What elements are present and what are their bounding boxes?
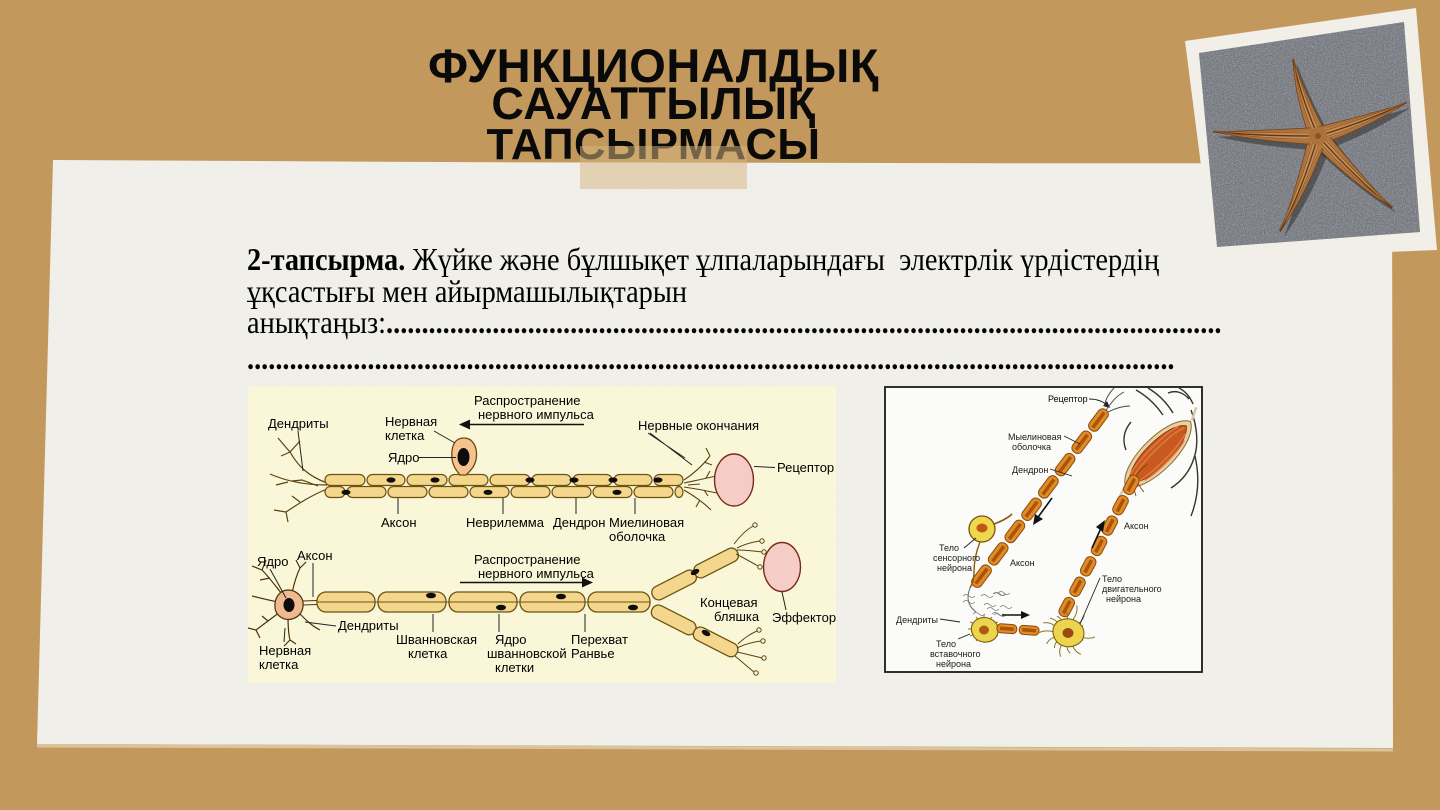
svg-text:Ранвье: Ранвье xyxy=(571,646,615,661)
svg-text:Нервные окончания: Нервные окончания xyxy=(638,418,759,433)
svg-text:Аксон: Аксон xyxy=(1124,521,1149,531)
svg-text:Шванновская: Шванновская xyxy=(396,632,477,647)
svg-text:нейрона: нейрона xyxy=(937,563,972,573)
svg-text:Перехват: Перехват xyxy=(571,632,628,647)
svg-text:вставочного: вставочного xyxy=(930,649,980,659)
svg-text:бляшка: бляшка xyxy=(714,609,760,624)
svg-text:Дендриты: Дендриты xyxy=(896,615,938,625)
svg-text:Рецептор: Рецептор xyxy=(777,460,834,475)
svg-text:Рецептор: Рецептор xyxy=(1048,394,1088,404)
svg-text:Мыелиновая: Мыелиновая xyxy=(1008,432,1062,442)
svg-text:Миелиновая: Миелиновая xyxy=(609,515,684,530)
svg-text:Дендрон: Дендрон xyxy=(553,515,605,530)
svg-text:Нервная: Нервная xyxy=(259,643,311,658)
svg-text:клетка: клетка xyxy=(259,657,299,672)
svg-text:Тело: Тело xyxy=(936,639,956,649)
svg-text:Дендрон: Дендрон xyxy=(1012,465,1048,475)
svg-text:Ядро: Ядро xyxy=(495,632,526,647)
svg-text:Нервная: Нервная xyxy=(385,414,437,429)
svg-text:Аксон: Аксон xyxy=(381,515,417,530)
svg-text:шванновской: шванновской xyxy=(487,646,567,661)
svg-text:нейрона: нейрона xyxy=(936,659,971,669)
svg-text:Распространение: Распространение xyxy=(474,393,580,408)
svg-text:Дендриты: Дендриты xyxy=(268,416,329,431)
svg-text:нервного импульса: нервного импульса xyxy=(478,407,595,422)
svg-text:Дендриты: Дендриты xyxy=(338,618,399,633)
svg-text:клетки: клетки xyxy=(495,660,534,675)
svg-text:Ядро: Ядро xyxy=(257,554,288,569)
svg-text:сенсорного: сенсорного xyxy=(933,553,980,563)
svg-text:нейрона: нейрона xyxy=(1106,594,1141,604)
svg-text:Распространение: Распространение xyxy=(474,552,580,567)
svg-text:нервного импульса: нервного импульса xyxy=(478,566,595,581)
svg-text:оболочка: оболочка xyxy=(1012,442,1051,452)
svg-text:Ядро: Ядро xyxy=(388,450,419,465)
svg-text:Неврилемма: Неврилемма xyxy=(466,515,545,530)
svg-text:Концевая: Концевая xyxy=(700,595,758,610)
svg-text:оболочка: оболочка xyxy=(609,529,666,544)
svg-text:двигательного: двигательного xyxy=(1102,584,1162,594)
svg-text:Тело: Тело xyxy=(939,543,959,553)
svg-text:Аксон: Аксон xyxy=(1010,558,1035,568)
svg-text:Аксон: Аксон xyxy=(297,548,333,563)
svg-text:Тело: Тело xyxy=(1102,574,1122,584)
svg-text:Эффектор: Эффектор xyxy=(772,610,836,625)
svg-text:клетка: клетка xyxy=(408,646,448,661)
svg-text:клетка: клетка xyxy=(385,428,425,443)
